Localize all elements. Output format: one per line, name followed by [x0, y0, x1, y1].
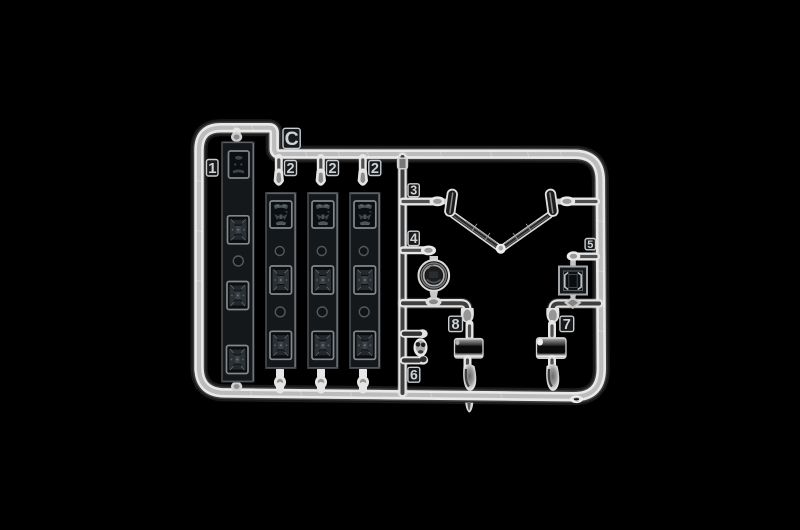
svg-text:4: 4 — [410, 231, 418, 246]
svg-text:2: 2 — [287, 161, 295, 177]
svg-text:2: 2 — [371, 161, 379, 177]
svg-text:8: 8 — [452, 317, 460, 333]
svg-text:2: 2 — [329, 161, 337, 177]
svg-text:C: C — [285, 128, 299, 150]
svg-text:6: 6 — [410, 367, 418, 383]
svg-text:3: 3 — [410, 184, 417, 198]
svg-text:7: 7 — [563, 317, 571, 333]
svg-text:1: 1 — [208, 160, 216, 177]
svg-text:5: 5 — [587, 239, 593, 251]
